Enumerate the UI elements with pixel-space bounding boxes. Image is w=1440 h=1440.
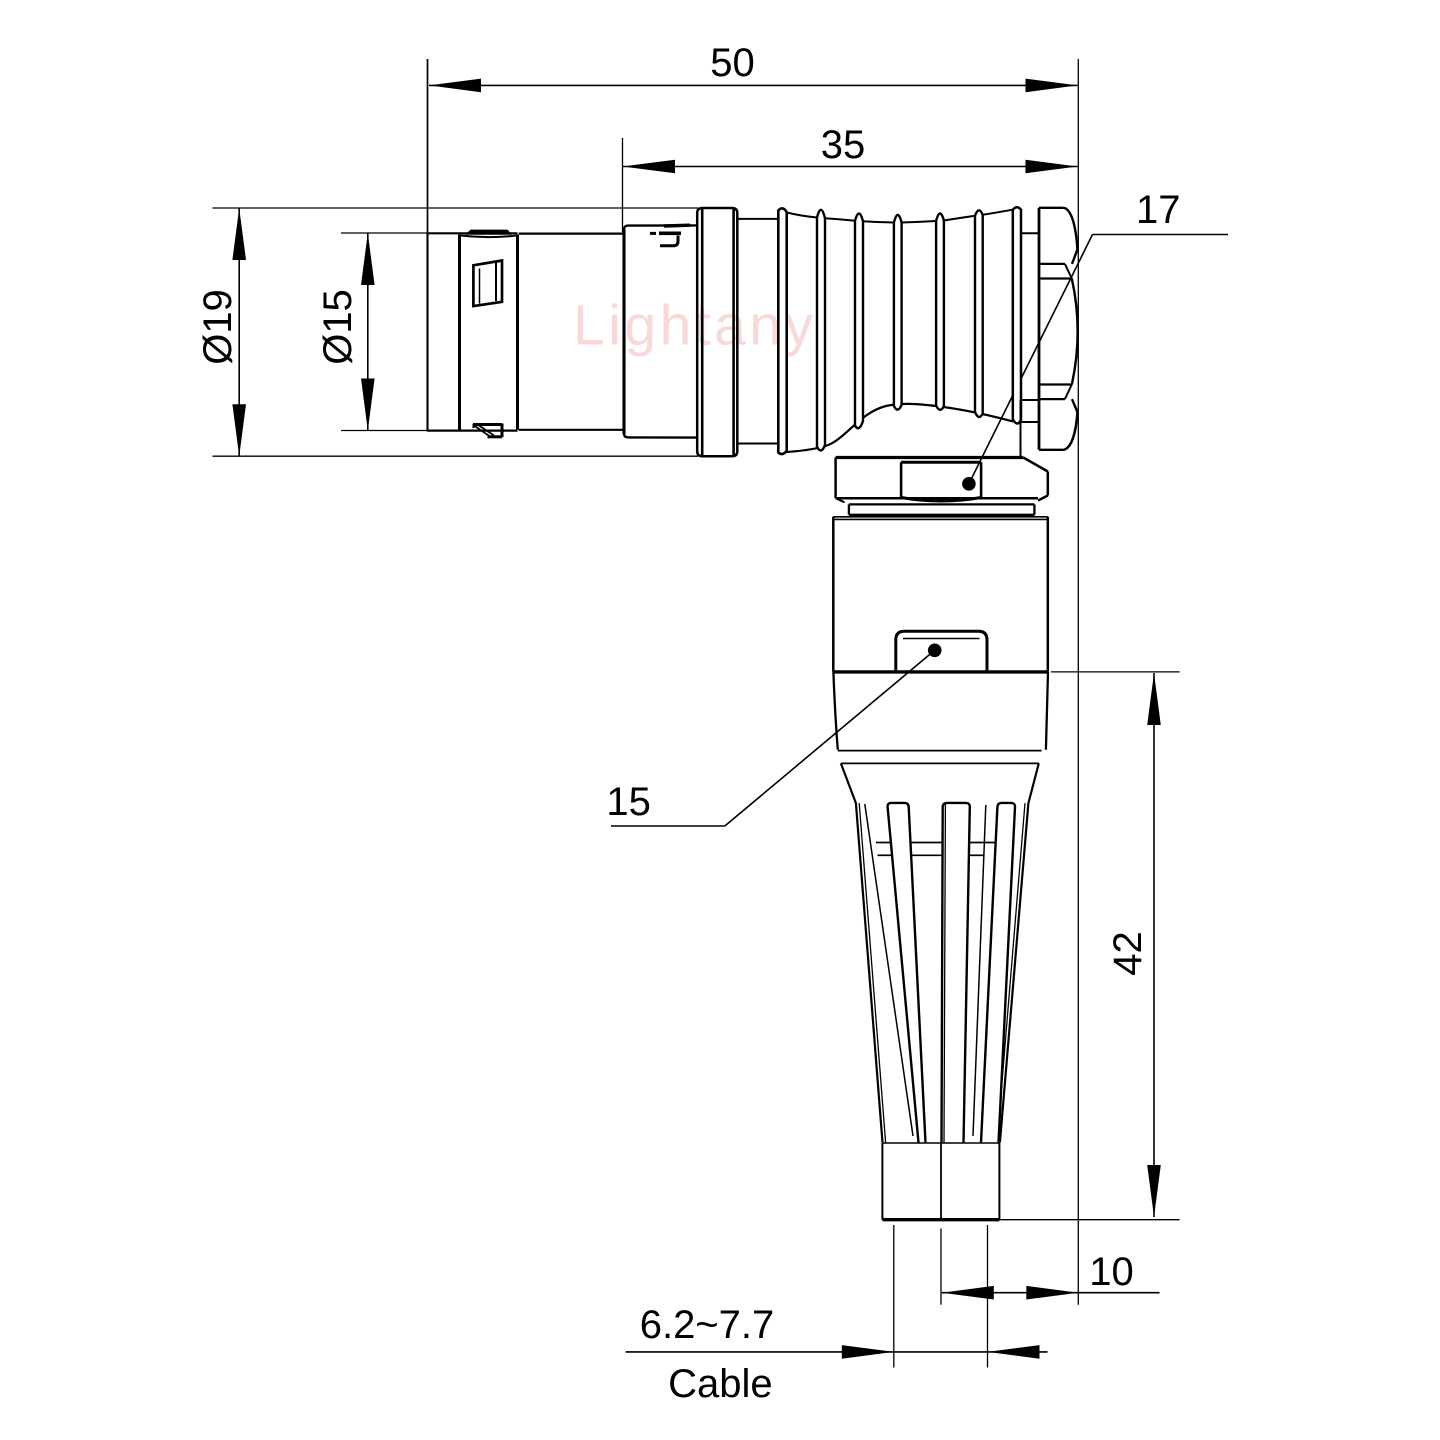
svg-text:10: 10: [1089, 1250, 1134, 1294]
svg-text:50: 50: [710, 41, 755, 85]
svg-text:Cable: Cable: [668, 1362, 773, 1406]
svg-text:35: 35: [821, 123, 866, 167]
svg-text:42: 42: [1106, 931, 1150, 976]
svg-text:15: 15: [606, 780, 651, 824]
svg-text:Ø15: Ø15: [316, 289, 360, 365]
svg-text:6.2~7.7: 6.2~7.7: [640, 1303, 775, 1347]
svg-text:Ø19: Ø19: [196, 289, 240, 365]
svg-text:17: 17: [1136, 188, 1181, 232]
